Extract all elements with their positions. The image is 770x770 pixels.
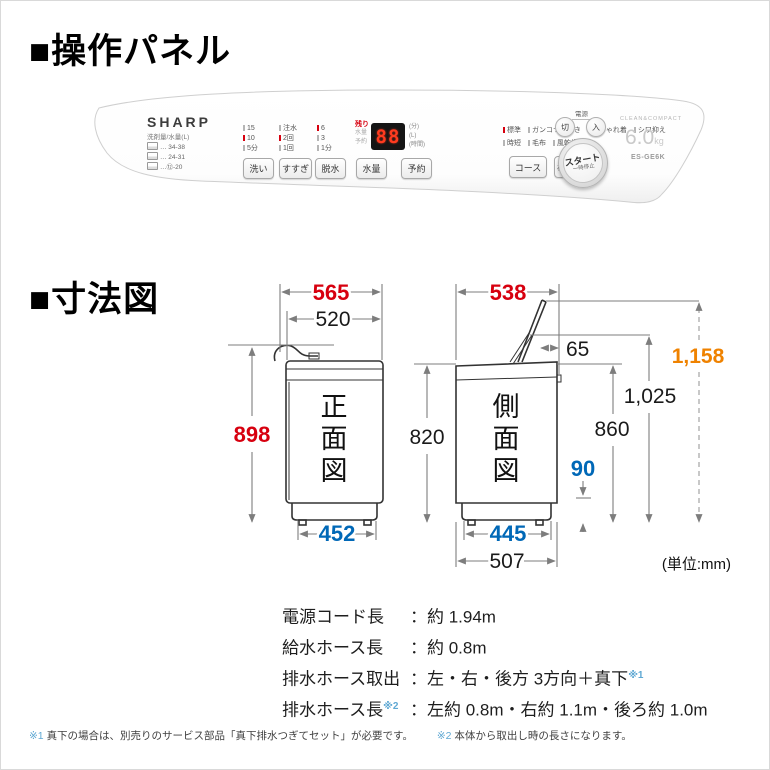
brand-logo: SHARP [147, 114, 211, 130]
legend-row: …⑫-20 [160, 164, 182, 171]
legend-row: … 24-31 [160, 154, 185, 161]
course-item: 時短 [507, 140, 521, 147]
course-tick-icon [553, 140, 555, 146]
spec-label: 排水ホース長 [282, 701, 383, 720]
display-sub-indicators: 水量 予約 [355, 129, 367, 147]
footnote-text: 真下の場合は、別売りのサービス部品「真下排水つぎてセット」が必要です。 [47, 730, 413, 742]
dim-front-width-body: 520 [315, 308, 350, 331]
rinse-options: 注水 2回 1回 [279, 124, 297, 154]
rinse-option: 1回 [283, 145, 294, 152]
front-view-label-char: 正 [321, 392, 348, 422]
indicator-reserve: 予約 [355, 138, 367, 147]
spec-label-footmark: ※2 [383, 701, 398, 712]
footnotes: ※1 真下の場合は、別売りのサービス部品「真下排水つぎてセット」が必要です。 ※… [29, 728, 632, 743]
dim-side-height-1025: 1,025 [624, 385, 677, 408]
option-tick-active-icon [279, 135, 281, 141]
capacity-tagline: CLEAN&COMPACT [620, 116, 682, 122]
power-label: 電源 [572, 108, 591, 120]
side-view-label-char: 図 [493, 456, 520, 486]
rinse-option: 2回 [283, 135, 294, 142]
capacity-value: 6.0kg [625, 126, 664, 150]
dim-side-height-back: 860 [594, 418, 629, 441]
dim-front-height: 898 [234, 422, 271, 447]
option-tick-active-icon [317, 125, 319, 131]
option-tick-icon [279, 145, 281, 151]
course-tick-icon [503, 140, 505, 146]
option-tick-icon [243, 125, 245, 131]
power-off-button: 切 [555, 117, 575, 137]
indicator-water: 水量 [355, 129, 367, 138]
power-on-button: 入 [586, 117, 606, 137]
spec-value: ：約 1.94m [410, 608, 496, 627]
spec-row-supply-hose: 給水ホース長 ：約 0.8m [282, 631, 708, 662]
front-view-label-char: 図 [321, 456, 348, 486]
dim-front-feet-span: 452 [319, 521, 356, 546]
operation-panel-image: SHARP 洗剤量/水量(L) … 34-38 … 24-31 …⑫-20 15… [71, 86, 711, 214]
option-tick-icon [279, 125, 281, 131]
wash-option: 5分 [247, 145, 258, 152]
wash-option: 15 [247, 125, 255, 132]
dim-side-feet-span: 445 [490, 521, 527, 546]
rinse-option: 注水 [283, 125, 297, 132]
spin-options: 6 3 1分 [317, 124, 332, 154]
reserve-button: 予約 [401, 158, 432, 179]
spec-list: 電源コード長 ：約 1.94m 給水ホース長 ：約 0.8m 排水ホース取出 ：… [282, 600, 708, 725]
seven-segment-display: 88 [371, 123, 405, 150]
course-button: コース [509, 156, 547, 178]
spin-option: 3 [321, 135, 325, 142]
course-tick-icon [528, 140, 530, 146]
course-tick-icon [528, 127, 530, 133]
dim-side-depth-body: 507 [489, 550, 524, 573]
side-view-label-char: 側 [493, 392, 520, 422]
load-high-icon [147, 142, 158, 150]
capacity-number: 6.0 [625, 126, 654, 149]
remaining-label: 残り [355, 119, 369, 129]
course-item: 標準 [507, 127, 521, 134]
dim-side-depth-total: 538 [490, 280, 527, 305]
dim-side-height-body: 820 [409, 426, 444, 449]
spec-value: ：左・右・後方 3方向＋真下 [410, 670, 628, 689]
spin-option: 1分 [321, 145, 332, 152]
front-view-label-char: 面 [321, 424, 348, 454]
dim-side-height-lid-open: 1,158 [672, 345, 725, 368]
front-view: 正 面 図 565 520 898 452 [228, 280, 383, 546]
side-view-label-char: 面 [493, 424, 520, 454]
spin-option: 6 [321, 125, 325, 132]
spin-button: 脱水 [315, 158, 346, 179]
rinse-button: すすぎ [279, 158, 312, 179]
spec-label: 給水ホース長 [282, 639, 383, 658]
footnote-mark: ※2 [437, 730, 452, 742]
spec-row-drain-outlet: 排水ホース取出 ：左・右・後方 3方向＋真下※1 [282, 662, 708, 693]
spec-label: 電源コード長 [282, 608, 384, 627]
display-unit-labels: (分) (L) (時間) [409, 123, 425, 150]
option-tick-icon [317, 135, 319, 141]
dim-front-width-total: 565 [313, 280, 350, 305]
unit-min: (分) [409, 123, 425, 132]
spec-value: ：約 0.8m [410, 639, 487, 658]
start-pause-button: スタート 一時停止 [558, 138, 608, 188]
spec-label: 排水ホース取出 [282, 670, 400, 689]
unit-hour: (時間) [409, 141, 425, 150]
footnote-mark: ※1 [29, 730, 44, 742]
course-tick-active-icon [503, 127, 505, 133]
wash-options: 15 10 5分 [243, 124, 258, 154]
footnote-text: 本体から取出し時の長さになります。 [454, 730, 631, 742]
side-view: 側 面 図 538 65 820 90 860 1,025 [409, 280, 724, 573]
spec-value-footmark: ※1 [628, 670, 643, 681]
spec-row-power-cord: 電源コード長 ：約 1.94m [282, 600, 708, 631]
dim-side-lid-offset: 65 [566, 338, 589, 361]
unit-note: (単位:mm) [662, 556, 731, 573]
water-level-button: 水量 [356, 158, 387, 179]
unit-liter: (L) [409, 132, 425, 141]
display-value: 88 [376, 126, 401, 148]
option-tick-icon [317, 145, 319, 151]
open-lid [510, 300, 546, 364]
option-tick-icon [243, 145, 245, 151]
section-title-operation-panel: ■操作パネル [29, 23, 231, 74]
section-title-dimension-diagram: ■寸法図 [29, 271, 159, 322]
dim-side-drain-height: 90 [571, 456, 595, 481]
load-mid-icon [147, 152, 158, 160]
spec-row-drain-hose-length: 排水ホース長※2 ：左約 0.8m・右約 1.1m・後ろ約 1.0m [282, 693, 708, 724]
wash-option: 10 [247, 135, 255, 142]
model-number: ES-GE6K [631, 154, 665, 161]
course-item: 毛布 [532, 140, 546, 147]
legend-title: 洗剤量/水量(L) [147, 133, 189, 142]
option-tick-active-icon [243, 135, 245, 141]
legend-row: … 34-38 [160, 144, 185, 151]
start-pause-face: スタート 一時停止 [560, 140, 606, 186]
capacity-unit: kg [654, 136, 664, 146]
spec-value: ：左約 0.8m・右約 1.1m・後ろ約 1.0m [410, 701, 708, 720]
load-low-icon [147, 162, 158, 170]
detergent-water-legend: 洗剤量/水量(L) … 34-38 … 24-31 …⑫-20 [147, 133, 189, 172]
wash-button: 洗い [243, 158, 274, 179]
dimension-diagram: 正 面 図 565 520 898 452 [226, 276, 761, 586]
